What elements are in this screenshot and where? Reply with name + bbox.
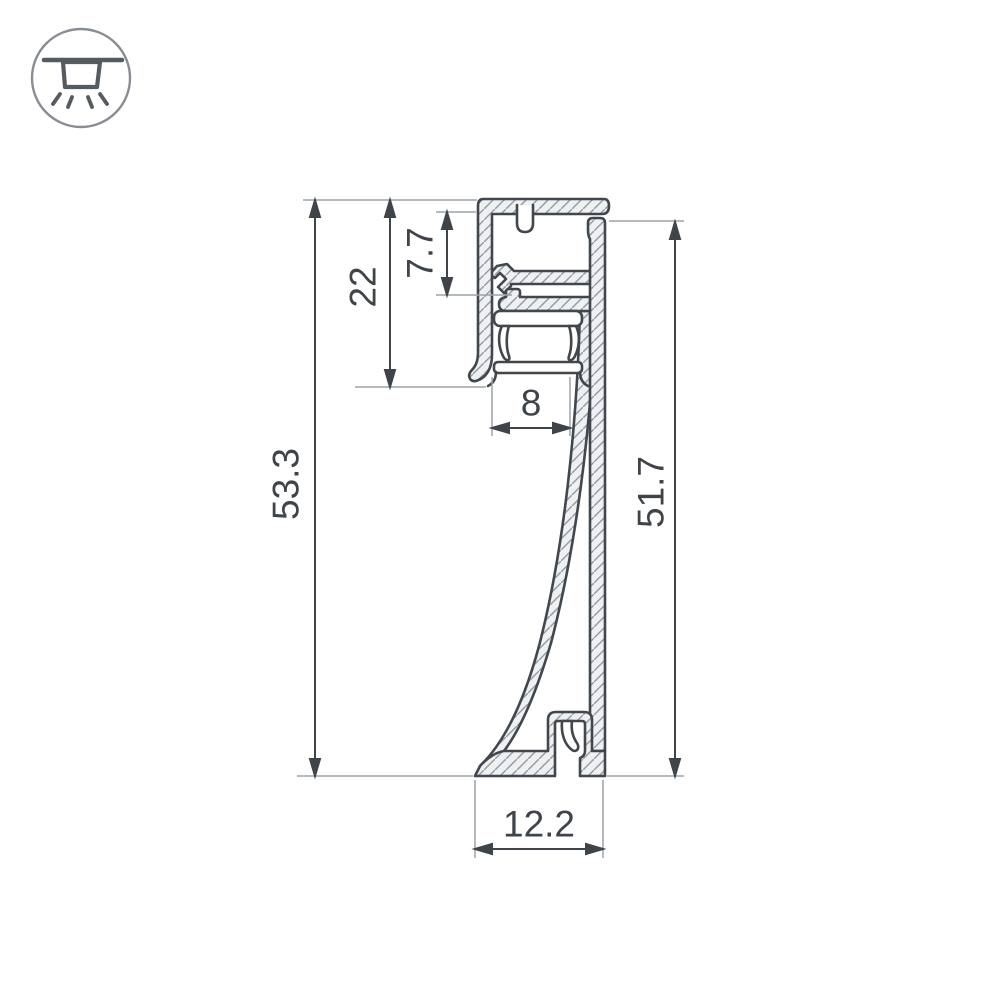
dim-label-base-width: 12.2: [503, 806, 575, 843]
recessed-light-icon: [32, 29, 130, 127]
back-wall: [588, 218, 605, 751]
curved-front-wall: [480, 311, 595, 766]
snap-hook-shelf: [489, 264, 592, 293]
dim-total-height: [310, 200, 320, 776]
technical-drawing-page: 53.3 22 7.7 8 51.7 12.2: [0, 0, 1000, 1000]
led-channel-left-clip: [499, 326, 509, 360]
dim-back-wall-height: [670, 222, 680, 776]
dim-base-width: [475, 844, 603, 854]
dim-label-back-wall-height: 51.7: [633, 456, 670, 528]
base-foot: [475, 712, 605, 776]
led-channel-top: [494, 311, 582, 326]
screw-notch: [517, 205, 533, 232]
led-channel-flange: [494, 362, 582, 373]
dim-label-total-height: 53.3: [268, 448, 305, 520]
profile-body: [469, 199, 609, 776]
led-channel: [488, 311, 588, 386]
profile-cross-section-drawing: [0, 0, 1000, 1000]
lower-shelf: [499, 289, 592, 311]
dim-label-cavity-height: 7.7: [402, 227, 439, 278]
dim-cavity-height: [442, 212, 452, 295]
dim-upper-section: [385, 200, 395, 387]
dim-label-led-opening: 8: [521, 385, 542, 422]
dim-led-opening: [492, 423, 570, 433]
icon-fixture-body: [63, 62, 100, 87]
dim-label-upper-section: 22: [345, 266, 382, 307]
clip-tongue: [562, 721, 578, 751]
